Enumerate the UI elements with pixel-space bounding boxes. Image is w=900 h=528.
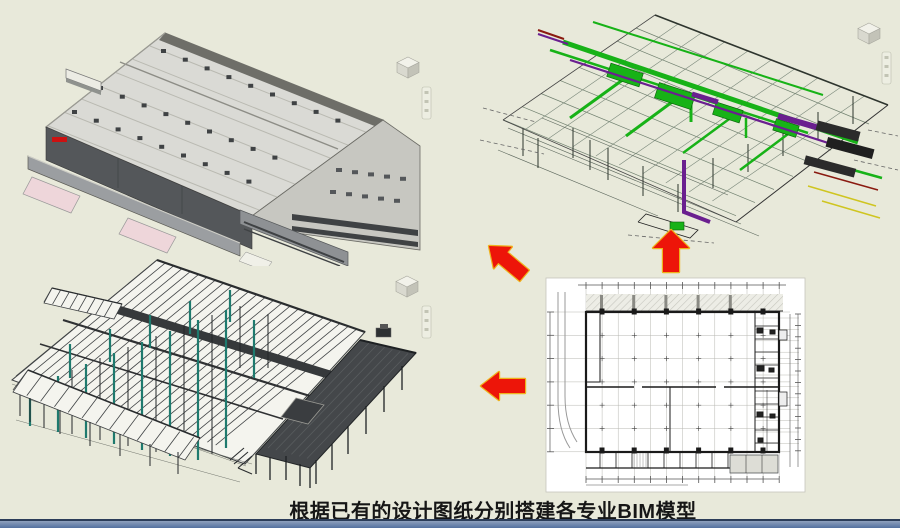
arrow-left-icon (481, 372, 525, 400)
overlay-layer (0, 0, 900, 528)
footer-bar (0, 519, 900, 528)
viewcube-icon (858, 23, 880, 44)
arrow-up-icon (653, 230, 689, 272)
navigation-bar-icon (882, 52, 891, 84)
arrow-up-left-icon (480, 235, 533, 286)
navigation-bar-icon (422, 87, 431, 119)
viewcube-icon (396, 276, 418, 297)
viewcube-icon (397, 57, 419, 78)
navigation-bar-icon (422, 306, 431, 338)
slide-canvas: 根据已有的设计图纸分别搭建各专业BIM模型 (0, 0, 900, 528)
